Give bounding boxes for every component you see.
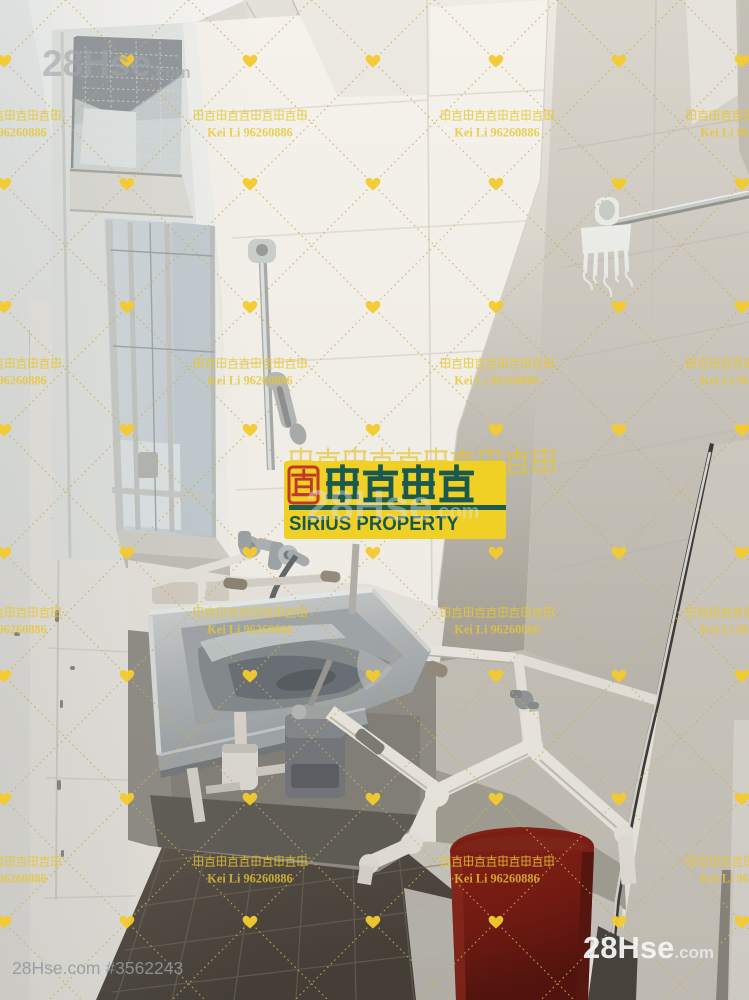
svg-text:28Hse.com #3562243: 28Hse.com #3562243 xyxy=(12,958,183,978)
